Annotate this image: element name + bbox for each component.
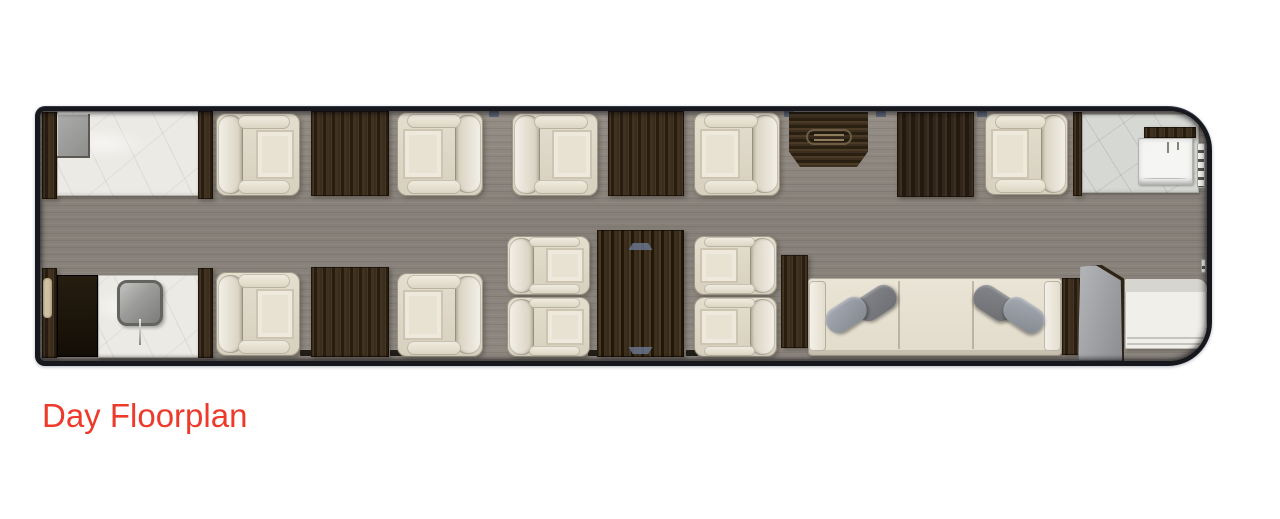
lavatory-sink	[1138, 138, 1193, 185]
lavatory-partition	[1073, 112, 1082, 196]
conference-table	[597, 230, 684, 357]
forward-bulkhead-cabinet-upper	[42, 112, 57, 199]
galley-cabinet	[57, 275, 98, 357]
galley-partition-lower	[198, 268, 213, 358]
cabin-outline	[35, 106, 1212, 366]
club-seat-7	[397, 273, 483, 357]
window-frame-mark	[489, 111, 499, 117]
galley-partition-upper	[198, 111, 213, 199]
club-seat-6	[216, 272, 300, 356]
lavatory-shelf	[1144, 127, 1196, 138]
cabin-floor	[40, 111, 1207, 361]
pocket-door	[1078, 265, 1124, 361]
aft-bench	[1125, 279, 1207, 349]
side-table-3	[311, 267, 389, 357]
club-seat-4	[694, 112, 780, 196]
window-frame-mark	[876, 111, 886, 117]
conference-seat-1	[507, 236, 590, 295]
floorplan-caption: Day Floorplan	[42, 397, 247, 435]
galley-appliance	[57, 114, 90, 158]
conference-seat-4	[694, 297, 777, 357]
credenza	[789, 112, 868, 167]
club-seat-1	[216, 113, 300, 196]
cabinet-handle-panel	[43, 278, 52, 318]
conference-seat-3	[694, 236, 777, 295]
club-seat-3	[512, 113, 598, 196]
club-seat-2	[397, 112, 483, 196]
side-table-1	[311, 111, 389, 196]
wardrobe-closet	[897, 112, 974, 197]
coat-hook	[1201, 259, 1206, 273]
side-table-2	[608, 111, 684, 196]
conference-seat-2	[507, 297, 590, 357]
divan	[808, 278, 1062, 356]
lavatory-towel-rail	[1197, 143, 1205, 188]
galley-sink	[117, 280, 163, 326]
window-frame-mark	[977, 111, 987, 117]
club-seat-5	[985, 113, 1068, 195]
divan-side-table-left	[781, 255, 808, 348]
